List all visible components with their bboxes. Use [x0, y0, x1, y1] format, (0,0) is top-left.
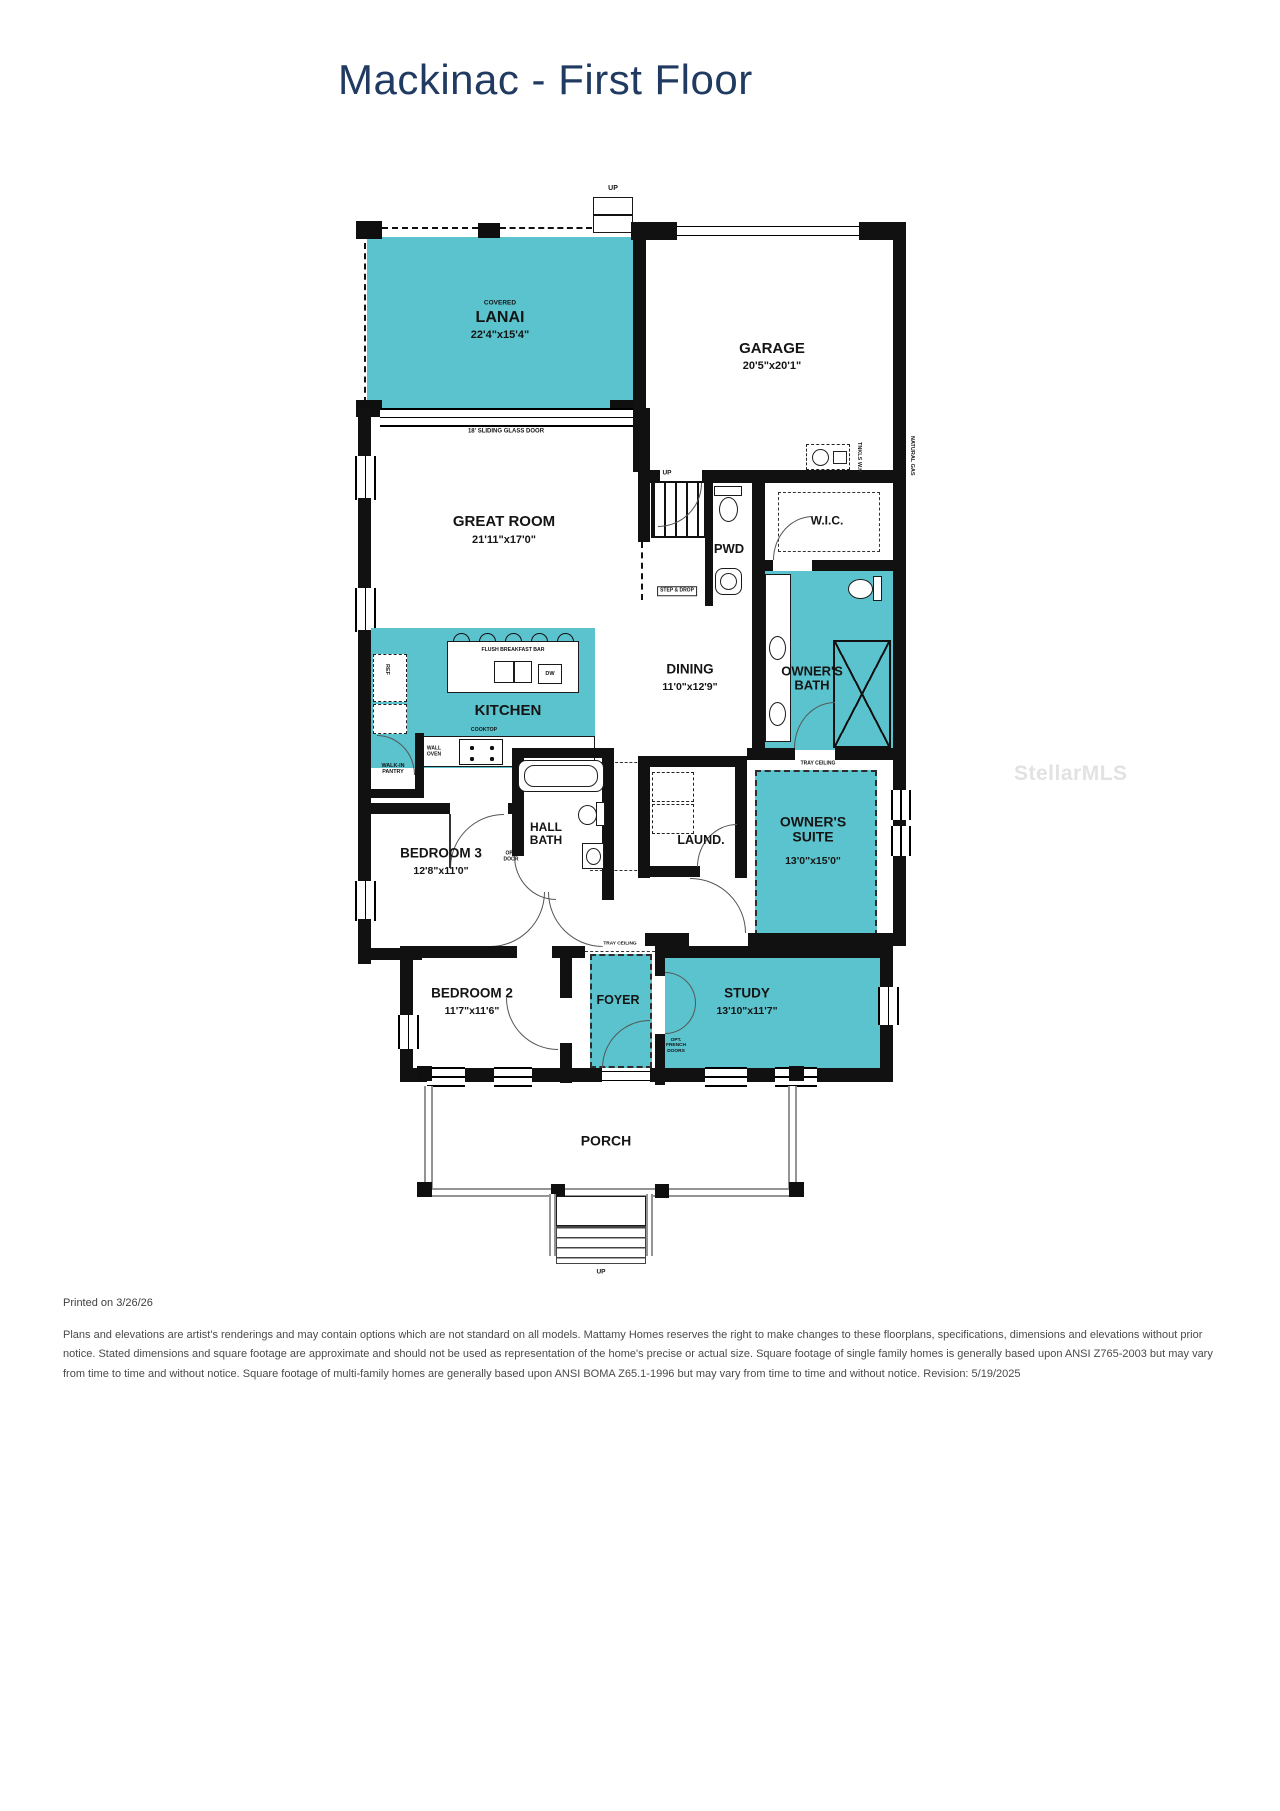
tray-ceiling-label: TRAY CEILING [601, 941, 638, 946]
porch-post [417, 1182, 432, 1197]
wall-post [478, 223, 500, 238]
toilet-bowl [719, 497, 738, 522]
window [355, 588, 376, 632]
opening-header [585, 951, 655, 952]
window [705, 1067, 747, 1087]
step-rail [549, 1194, 556, 1256]
study-dims: 13'10"x11'7" [716, 1006, 777, 1018]
wall [638, 408, 650, 542]
wall [465, 1068, 494, 1082]
pwd-label: PWD [714, 542, 744, 556]
porch-rail [788, 1086, 797, 1192]
window [891, 790, 911, 820]
sink [494, 661, 514, 683]
cased-opening [641, 542, 643, 600]
wall [358, 789, 424, 798]
wall [645, 933, 689, 946]
wall [812, 560, 893, 571]
natural-gas-label: NATURAL GAS [909, 436, 915, 476]
watermark: StellarMLS [1014, 762, 1128, 786]
screen-wall [382, 227, 478, 229]
wall [817, 1068, 893, 1082]
cooktop-label: COOKTOP [469, 728, 499, 734]
wall [358, 803, 450, 814]
refrigerator [373, 654, 407, 702]
wall [358, 630, 371, 807]
cabinet [373, 704, 407, 734]
opt-french-doors-label: OPT. FRENCH DOORS [664, 1038, 688, 1054]
page-title: Mackinac - First Floor [338, 56, 753, 104]
wall [765, 560, 773, 571]
shower [833, 640, 891, 748]
dining-dims: 11'0"x12'9" [662, 682, 717, 694]
tray-ceiling-label: TRAY CEILING [801, 761, 836, 767]
wall [893, 856, 906, 946]
toilet-bowl [848, 579, 873, 599]
up-label: UP [662, 469, 671, 476]
wall-post [356, 221, 382, 239]
door-arc [548, 892, 603, 947]
wall [835, 748, 893, 760]
up-label: UP [596, 1268, 605, 1275]
porch-post [789, 1182, 804, 1197]
toilet-tank [714, 486, 742, 496]
sliding-glass-door [380, 408, 635, 427]
screen-wall [500, 227, 592, 229]
tankless-wh-label: TNKLS W.H. [856, 442, 862, 474]
wall [655, 946, 665, 976]
cooktop-burners [459, 739, 503, 765]
porch-post [417, 1066, 432, 1081]
wall [532, 1068, 602, 1082]
garage-door [677, 226, 861, 236]
dryer [652, 804, 694, 834]
front-door-threshold [602, 1071, 650, 1081]
wall [560, 946, 572, 998]
owners-suite-area [755, 770, 877, 936]
foyer-label: FOYER [596, 994, 639, 1008]
wall [747, 1068, 775, 1082]
porch-label: PORCH [581, 1133, 632, 1148]
toilet-tank [596, 802, 605, 826]
printed-on: Printed on 3/26/26 [63, 1297, 153, 1309]
door-arc [506, 998, 558, 1050]
disclaimer-text: Plans and elevations are artist's render… [63, 1326, 1225, 1384]
kitchen-label: KITCHEN [475, 703, 542, 720]
wall [748, 933, 893, 946]
bathtub [518, 760, 604, 792]
sink [715, 568, 742, 595]
wall [752, 478, 765, 752]
garage-dims: 20'5"x20'1" [743, 360, 802, 372]
ref-label: REF [384, 664, 390, 675]
window [355, 881, 376, 921]
sliding-door-label: 18' SLIDING GLASS DOOR [468, 429, 544, 436]
hall-bath-label: HALL BATH [524, 821, 568, 847]
wall [705, 478, 713, 606]
wall [655, 946, 893, 958]
study-label: STUDY [724, 987, 770, 1002]
great-room-dims: 21'11"x17'0" [472, 534, 536, 546]
wall [638, 756, 747, 767]
step-rail [646, 1194, 653, 1256]
entry-landing [556, 1196, 646, 1226]
laundry-label: LAUND. [677, 834, 724, 848]
window [891, 826, 911, 856]
wall [400, 946, 413, 1015]
window [355, 456, 376, 500]
bedroom3-label: BEDROOM 3 [400, 847, 482, 862]
wall [650, 1068, 705, 1082]
lanai-stoop [593, 197, 633, 233]
owners-suite-label: OWNER'S SUITE [768, 815, 858, 846]
sink [769, 636, 786, 660]
pantry-label: WALK-IN PANTRY [377, 764, 409, 776]
bedroom2-dims: 11'7"x11'6" [445, 1006, 500, 1018]
lanai-label: LANAI [476, 309, 525, 327]
bedroom3-dims: 12'8"x11'0" [413, 866, 468, 878]
wall [415, 733, 424, 797]
wic-label: W.I.C. [808, 514, 847, 527]
wall [880, 946, 893, 987]
breakfast-bar-label: FLUSH BREAKFAST BAR [481, 648, 544, 654]
wall-oven-label: WALL OVEN [422, 747, 446, 758]
door-arc [490, 892, 545, 947]
screen-wall [364, 243, 366, 403]
door-arc [690, 878, 746, 933]
lanai-covered-label: COVERED [484, 299, 516, 306]
window [427, 1067, 465, 1087]
owners-bath-label: OWNER'S BATH [774, 665, 850, 694]
bedroom2-label: BEDROOM 2 [431, 987, 513, 1002]
window [398, 1015, 419, 1049]
water-heater [806, 444, 850, 470]
dining-label: DINING [666, 663, 713, 678]
toilet-tank [873, 576, 882, 601]
wall [638, 866, 700, 877]
wall [358, 408, 371, 458]
up-label: UP [608, 185, 618, 193]
window [494, 1067, 532, 1087]
great-room-label: GREAT ROOM [453, 514, 555, 531]
garage-label: GARAGE [739, 341, 805, 358]
wall [638, 756, 650, 878]
sink [582, 843, 604, 869]
wall [400, 946, 517, 958]
lanai-dims: 22'4"x15'4" [471, 329, 530, 341]
wall [358, 498, 371, 590]
wall [893, 222, 906, 484]
entry-steps [556, 1226, 646, 1264]
wall [893, 484, 906, 790]
window [878, 987, 899, 1025]
porch-rail [424, 1086, 433, 1192]
dw-label: DW [545, 671, 554, 677]
wall [358, 805, 371, 883]
porch-post [655, 1184, 669, 1198]
wall [747, 748, 795, 760]
floorplan-page: Mackinac - First Floor UP 18' SLIDING GL… [0, 0, 1280, 1811]
washer [652, 772, 694, 802]
wall [512, 748, 614, 758]
sink [514, 661, 532, 683]
toilet-bowl [578, 805, 597, 825]
owners-suite-dims: 13'0"x15'0" [785, 856, 841, 868]
porch-post [789, 1066, 804, 1081]
step-drop-label: STEP & DROP [657, 586, 697, 596]
wall [702, 470, 905, 483]
sink [769, 702, 786, 726]
